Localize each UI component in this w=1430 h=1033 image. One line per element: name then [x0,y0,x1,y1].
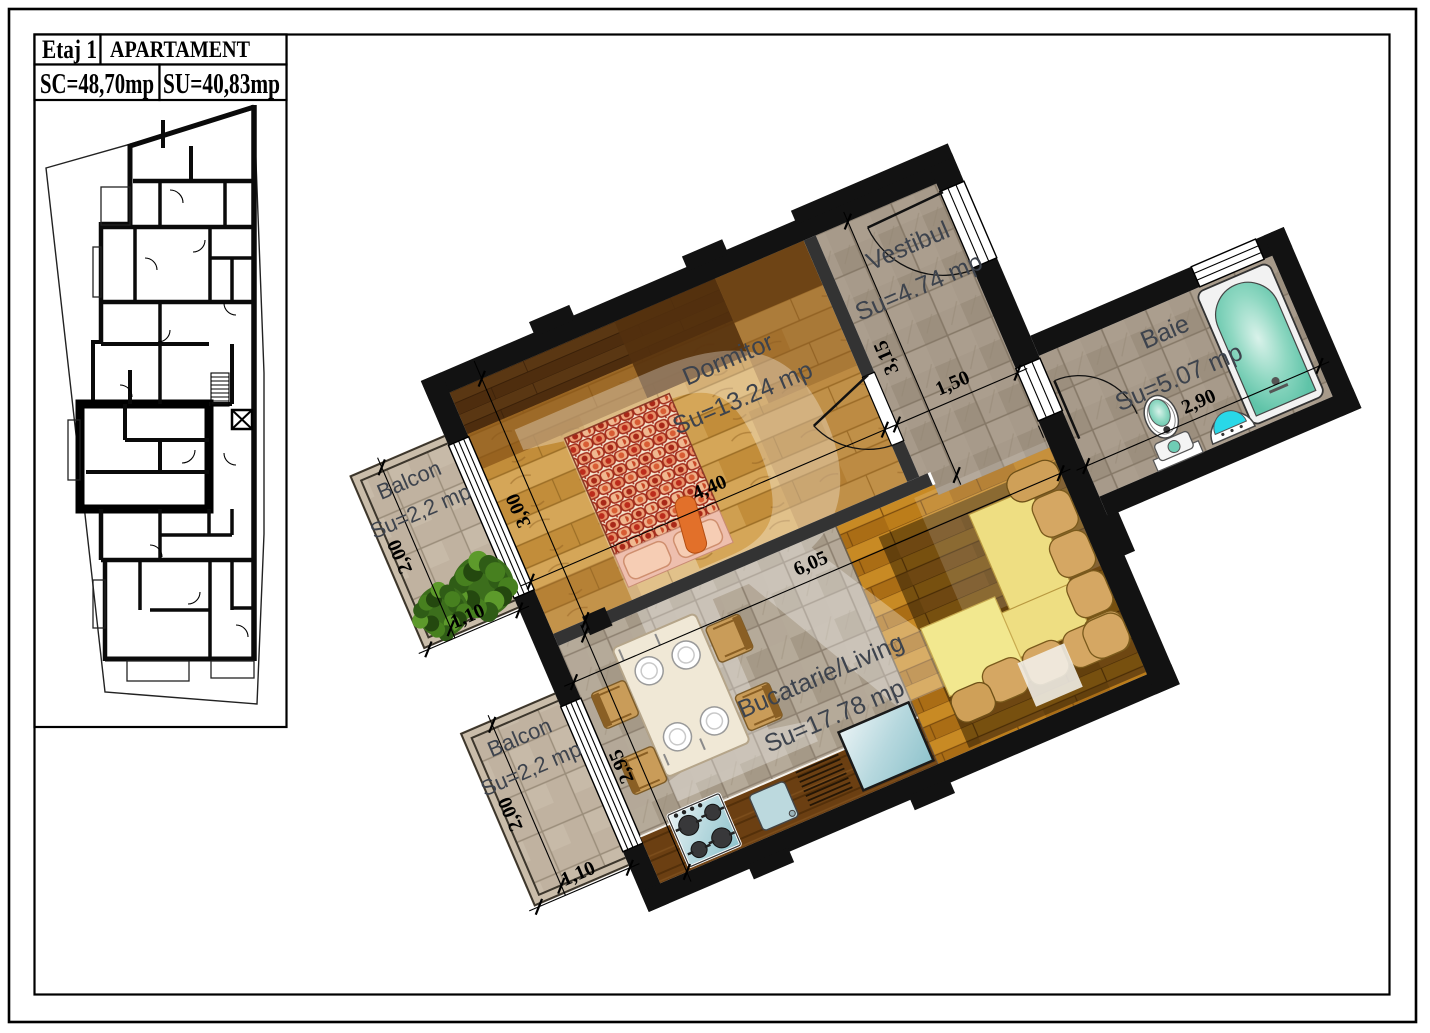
svg-text:SU=40,83mp: SU=40,83mp [163,69,280,100]
svg-text:Etaj 1: Etaj 1 [42,35,97,64]
svg-text:SC=48,70mp: SC=48,70mp [40,69,154,100]
svg-text:APARTAMENT: APARTAMENT [110,37,250,62]
